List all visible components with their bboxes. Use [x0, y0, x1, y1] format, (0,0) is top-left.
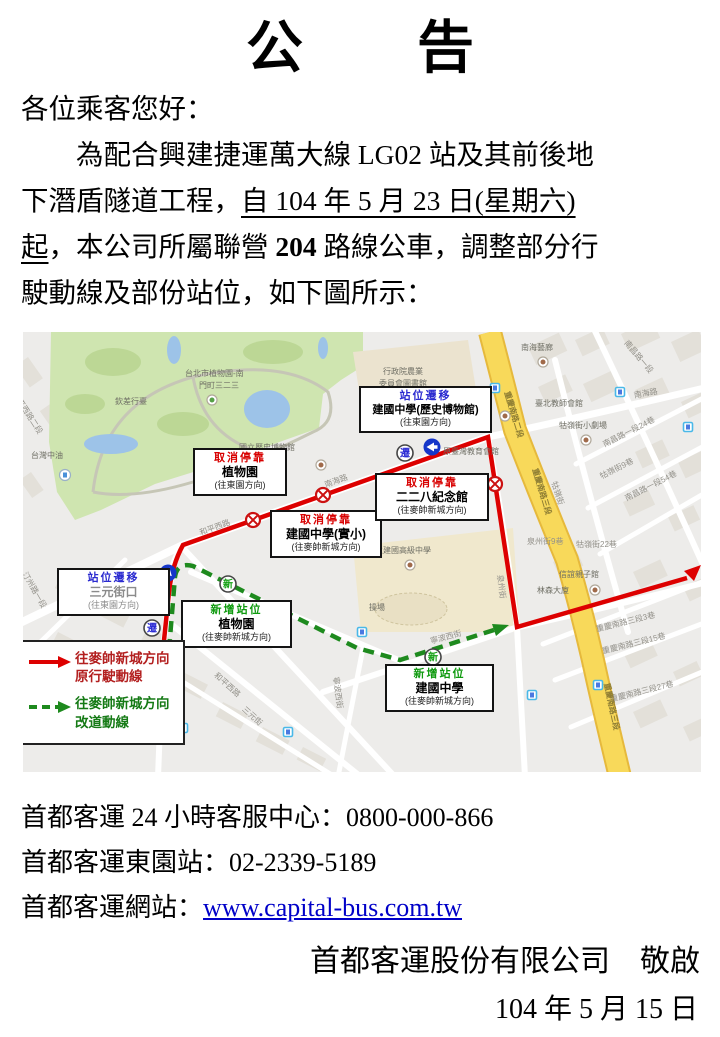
- street-label: 和平西路二段: [23, 390, 45, 436]
- poi-label: 操場: [369, 602, 385, 613]
- street-label: 重慶南路三段15巷: [601, 630, 667, 656]
- callout-cancel-228-memorial: 取消停靠 二二八紀念館 (往麥帥新城方向): [375, 473, 489, 521]
- legend-label: 改道動線: [75, 714, 170, 732]
- callout-stop-name: 植物園: [184, 617, 289, 632]
- greeting-line: 各位乘客您好：: [21, 86, 711, 132]
- callout-title: 取消停靠: [378, 476, 486, 490]
- callout-direction: (往麥帥新城方向): [388, 696, 491, 708]
- callout-title: 新增站位: [184, 603, 289, 617]
- callout-new-botanical-garden: 新增站位 植物園 (往麥帥新城方向): [181, 600, 292, 648]
- callout-move-chienkuo-museum: 站位遷移 建國中學(歷史博物館) (往東園方向): [359, 386, 492, 433]
- street-label: 重慶南路三段3巷: [595, 609, 656, 634]
- callout-direction: (往麥帥新城方向): [273, 542, 379, 554]
- callout-stop-name: 建國中學(實小): [273, 527, 379, 542]
- body-line: 起，本公司所屬聯營 204 路線公車，調整部分行: [21, 224, 711, 270]
- street-label: 牯嶺街: [549, 480, 567, 506]
- poi-label: 南海藝廊: [521, 342, 553, 353]
- poi-label: 原臺灣教育會館: [443, 446, 499, 457]
- poi-label: 臺北教師會館: [535, 398, 583, 409]
- street-label: 汀州路一段: [23, 570, 49, 610]
- body-line: 駛動線及部份站位，如下圖所示：: [21, 270, 711, 316]
- callout-stop-name: 植物園: [196, 465, 284, 480]
- callout-direction: (往麥帥新城方向): [378, 505, 486, 517]
- map-legend: 往麥帥新城方向 原行駛動線 往麥帥新城方向 改道動線: [23, 640, 185, 745]
- legend-label: 往麥帥新城方向: [75, 650, 170, 668]
- poi-label: 林森大廈: [537, 585, 569, 596]
- date-line: 104 年 5 月 15 日: [495, 987, 698, 1027]
- callout-cancel-botanical-garden: 取消停靠 植物園 (往東園方向): [193, 448, 287, 496]
- poi-label: 行政院農業: [383, 366, 423, 377]
- solid-red-arrow-icon: [28, 655, 72, 669]
- body-line: 下潛盾隧道工程，自 104 年 5 月 23 日(星期六): [21, 178, 711, 224]
- callout-cancel-chienkuo-shixiao: 取消停靠 建國中學(實小) (往麥帥新城方向): [270, 510, 382, 558]
- callout-title: 取消停靠: [273, 513, 379, 527]
- poi-label: 台北市植物園-南: [185, 368, 244, 379]
- callout-title: 取消停靠: [196, 451, 284, 465]
- street-label: 南昌路一段24巷: [601, 414, 657, 450]
- callout-stop-name: 二二八紀念館: [378, 490, 486, 505]
- callout-title: 新增站位: [388, 667, 491, 681]
- callout-direction: (往東園方向): [60, 600, 167, 612]
- station-phone-line: 首都客運東園站：02-2339-5189: [21, 840, 493, 885]
- callout-move-sanyuan-st: 站位遷移 三元街口 (往東園方向): [57, 568, 170, 616]
- poi-label: 牯嶺街小劇場: [559, 420, 607, 431]
- callout-title: 站位遷移: [60, 571, 167, 585]
- street-label: 寧波西街: [429, 628, 463, 647]
- body-paragraph: 為配合興建捷運萬大線 LG02 站及其前後地下潛盾隧道工程，自 104 年 5 …: [21, 132, 711, 316]
- callout-stop-name: 建國中學: [388, 681, 491, 696]
- legend-label: 往麥帥新城方向: [75, 695, 170, 713]
- street-label: 三元街: [240, 704, 265, 728]
- dashed-green-arrow-icon: [28, 700, 72, 714]
- street-label: 和平西路: [198, 517, 232, 538]
- website-label: 首都客運網站：: [21, 893, 203, 922]
- street-label: 南海路: [633, 386, 659, 401]
- street-label: 和平西路: [212, 670, 243, 700]
- callout-stop-name: 三元街口: [60, 585, 167, 600]
- website-line: 首都客運網站：www.capital-bus.com.tw: [21, 885, 493, 930]
- callout-title: 站位遷移: [362, 389, 489, 403]
- legend-original-route: 往麥帥新城方向 原行駛動線: [28, 650, 180, 686]
- street-label: 泉州街: [494, 574, 508, 599]
- street-label: 泉州街9巷: [527, 536, 563, 547]
- hotline-line: 首都客運 24 小時客服中心：0800-000-866: [21, 795, 493, 840]
- street-label: 南海路: [323, 472, 349, 491]
- route-map: 遷 遷 新 新: [23, 332, 701, 772]
- street-label: 南昌路一段54巷: [623, 468, 679, 504]
- signature-line: 首都客運股份有限公司 敬啟: [310, 936, 700, 980]
- website-link[interactable]: www.capital-bus.com.tw: [203, 893, 462, 922]
- street-label: 重慶南路三段: [601, 682, 622, 731]
- notice-body: 各位乘客您好： 為配合興建捷運萬大線 LG02 站及其前後地下潛盾隧道工程，自 …: [21, 86, 711, 316]
- poi-label: 欽差行臺: [115, 396, 147, 407]
- street-label: 南昌路一段: [622, 338, 656, 376]
- callout-new-chienkuo: 新增站位 建國中學 (往麥帥新城方向): [385, 664, 494, 712]
- legend-label: 原行駛動線: [75, 668, 170, 686]
- poi-label: 門町三二三: [199, 380, 239, 391]
- poi-label: 台灣中油: [31, 450, 63, 461]
- street-label: 牯嶺街9巷: [598, 455, 635, 481]
- street-label: 重慶南路二段: [501, 390, 526, 439]
- page-title: 公 告: [0, 2, 720, 84]
- poi-label: 信誼親子館: [559, 569, 599, 580]
- callout-direction: (往麥帥新城方向): [184, 632, 289, 644]
- body-line: 為配合興建捷運萬大線 LG02 站及其前後地: [21, 132, 711, 178]
- callout-stop-name: 建國中學(歷史博物館): [362, 403, 489, 417]
- street-label: 牯嶺街22巷: [576, 539, 617, 550]
- legend-detour-route: 往麥帥新城方向 改道動線: [28, 695, 180, 731]
- callout-direction: (往東園方向): [196, 480, 284, 492]
- contact-block: 首都客運 24 小時客服中心：0800-000-866 首都客運東園站：02-2…: [21, 795, 493, 930]
- street-label: 重慶南路三段27巷: [609, 678, 675, 704]
- callout-direction: (往東園方向): [362, 417, 489, 429]
- street-label: 寧波西街: [330, 676, 345, 709]
